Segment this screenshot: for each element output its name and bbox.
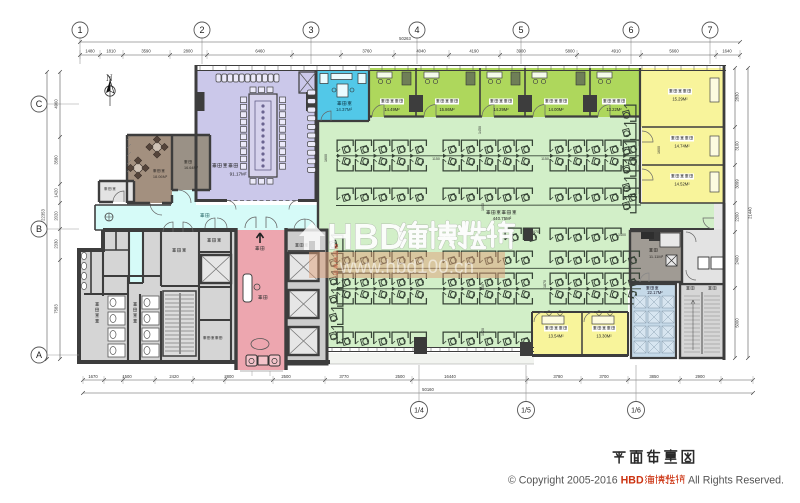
svg-text:3099: 3099 (735, 179, 740, 189)
svg-text:2800: 2800 (224, 374, 234, 379)
svg-text:14.37M²: 14.37M² (336, 107, 353, 112)
svg-text:1000: 1000 (481, 203, 485, 211)
svg-text:91.17M²: 91.17M² (230, 172, 247, 177)
svg-text:5: 5 (518, 25, 523, 35)
svg-text:50263: 50263 (399, 36, 411, 41)
svg-text:14.74M²: 14.74M² (674, 144, 690, 149)
svg-text:15.86M²: 15.86M² (439, 107, 455, 112)
svg-text:1/6: 1/6 (631, 408, 641, 415)
svg-text:14.29M²: 14.29M² (493, 107, 509, 112)
svg-text:2500: 2500 (281, 374, 291, 379)
svg-text:2330: 2330 (54, 239, 59, 249)
svg-text:14.00M²: 14.00M² (548, 107, 564, 112)
svg-text:3900: 3900 (516, 49, 526, 54)
svg-text:440.75M²: 440.75M² (493, 216, 512, 221)
svg-text:870: 870 (533, 230, 539, 234)
svg-text:3100: 3100 (735, 141, 740, 151)
svg-text:1400: 1400 (618, 233, 626, 237)
svg-text:HBD: HBD (327, 216, 405, 257)
svg-text:6460: 6460 (255, 49, 265, 54)
svg-text:N: N (106, 73, 113, 83)
svg-text:1870: 1870 (543, 280, 547, 288)
svg-text:11.11M²: 11.11M² (649, 254, 664, 259)
svg-text:14.52M²: 14.52M² (674, 182, 690, 187)
svg-text:3850: 3850 (649, 374, 659, 379)
svg-text:21440: 21440 (748, 207, 753, 219)
svg-text:4910: 4910 (611, 49, 621, 54)
svg-text:5800: 5800 (565, 49, 575, 54)
svg-text:1/5: 1/5 (521, 408, 531, 415)
svg-text:2: 2 (199, 25, 204, 35)
svg-text:1420: 1420 (54, 188, 59, 198)
svg-text:5000: 5000 (735, 318, 740, 328)
svg-text:4960: 4960 (54, 99, 59, 109)
svg-text:16440: 16440 (444, 374, 456, 379)
svg-text:2900: 2900 (695, 374, 705, 379)
svg-text:1480: 1480 (85, 49, 95, 54)
svg-text:18.06M²: 18.06M² (153, 174, 168, 179)
svg-text:2420: 2420 (169, 374, 179, 379)
svg-text:C: C (36, 99, 43, 109)
svg-text:4040: 4040 (416, 49, 426, 54)
svg-text:3780: 3780 (553, 374, 563, 379)
svg-text:22353: 22353 (41, 209, 46, 221)
svg-text:3700: 3700 (599, 374, 609, 379)
svg-text:1450: 1450 (478, 126, 482, 134)
svg-text:1150: 1150 (541, 157, 549, 161)
svg-text:16.64M²: 16.64M² (184, 166, 199, 170)
svg-text:7: 7 (707, 25, 712, 35)
svg-text:5660: 5660 (669, 49, 679, 54)
svg-text:2400: 2400 (735, 255, 740, 265)
svg-text:1: 1 (77, 25, 82, 35)
svg-text:1600: 1600 (657, 146, 661, 154)
svg-text:1020: 1020 (481, 328, 485, 336)
svg-text:3770: 3770 (339, 374, 349, 379)
svg-text:3590: 3590 (141, 49, 151, 54)
svg-text:All Rights Reserved.: All Rights Reserved. (688, 475, 784, 487)
svg-text:1500: 1500 (122, 374, 132, 379)
svg-text:13.54M²: 13.54M² (548, 334, 564, 339)
svg-text:13.22M²: 13.22M² (606, 107, 622, 112)
svg-text:1640: 1640 (722, 49, 732, 54)
svg-text:22.17M²: 22.17M² (647, 290, 663, 295)
svg-text:1/4: 1/4 (414, 408, 424, 415)
svg-text:1670: 1670 (88, 374, 98, 379)
svg-text:© Copyright 2005-2016 HBD: © Copyright 2005-2016 HBD (508, 475, 644, 487)
svg-text:www.hbd100.cn: www.hbd100.cn (339, 257, 474, 278)
svg-text:B: B (36, 224, 42, 234)
svg-text:3580: 3580 (54, 155, 59, 165)
svg-text:4190: 4190 (469, 49, 479, 54)
svg-text:2500: 2500 (395, 374, 405, 379)
svg-text:2830: 2830 (735, 92, 740, 102)
svg-text:2200: 2200 (735, 212, 740, 222)
svg-text:15.29M²: 15.29M² (672, 97, 688, 102)
svg-text:2800: 2800 (183, 49, 193, 54)
svg-text:3760: 3760 (362, 49, 372, 54)
svg-text:7583: 7583 (54, 304, 59, 314)
svg-text:850: 850 (481, 284, 485, 290)
svg-text:1150: 1150 (432, 157, 440, 161)
svg-text:14.49M²: 14.49M² (384, 107, 400, 112)
svg-text:3: 3 (308, 25, 313, 35)
svg-text:1600: 1600 (324, 154, 328, 162)
svg-text:13.30M²: 13.30M² (596, 334, 612, 339)
svg-text:1810: 1810 (106, 49, 116, 54)
svg-text:A: A (36, 350, 42, 360)
svg-text:4: 4 (414, 25, 419, 35)
svg-text:2020: 2020 (54, 211, 59, 221)
svg-text:6: 6 (628, 25, 633, 35)
svg-text:50160: 50160 (422, 387, 434, 392)
